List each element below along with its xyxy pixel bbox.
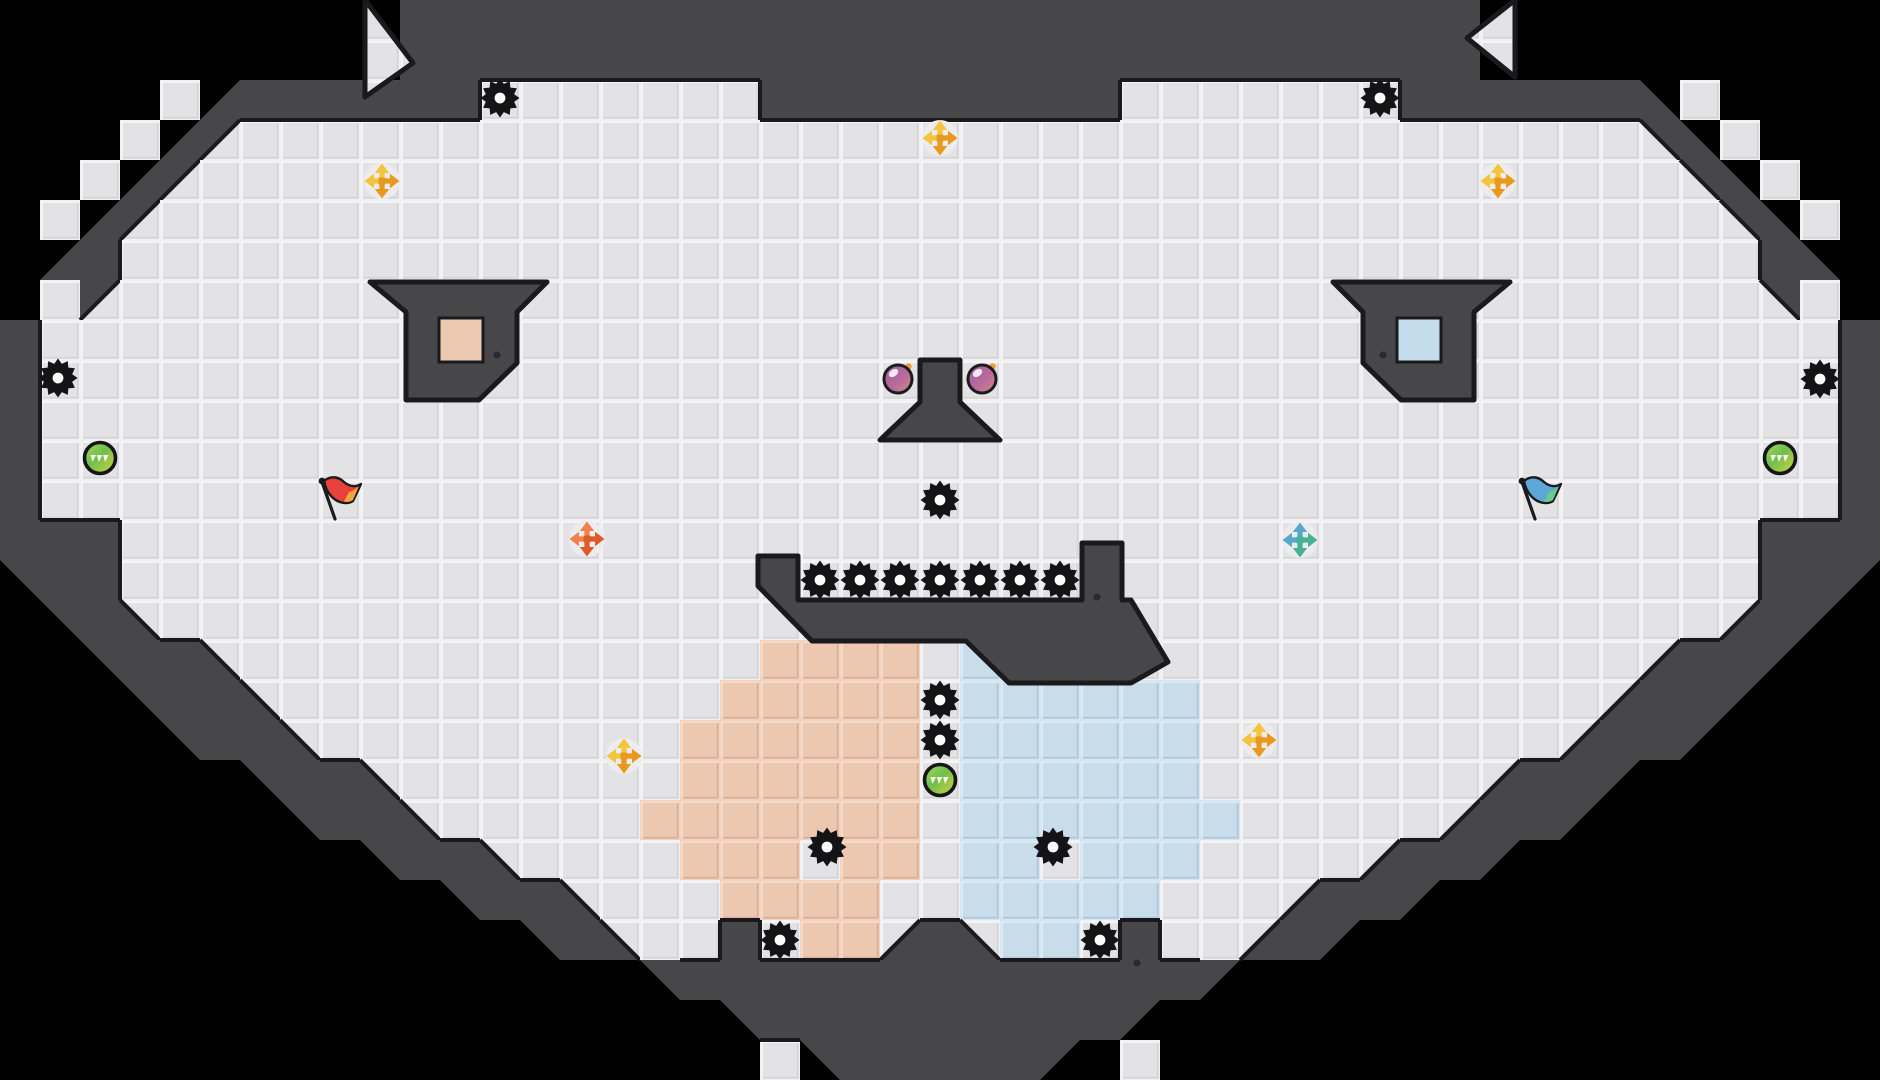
left-eye-square [439,318,483,362]
teal-plus-icon[interactable] [1282,522,1318,558]
purple-orb-icon[interactable] [968,363,996,393]
orange-plus-icon[interactable] [569,521,605,557]
game-level-screen [0,0,1880,1080]
green-orb-icon[interactable] [85,443,116,474]
yellow-plus-icon[interactable] [1480,163,1516,199]
yellow-plus-icon[interactable] [606,738,642,774]
level-canvas[interactable] [0,0,1880,1080]
yellow-plus-icon[interactable] [1241,722,1277,758]
screw-dot [1380,352,1387,359]
yellow-plus-icon[interactable] [364,163,400,199]
screw-dot [1094,594,1101,601]
green-orb-icon[interactable] [1765,443,1796,474]
purple-orb-icon[interactable] [884,363,912,393]
right-eye-square [1397,318,1441,362]
screw-dot [1134,960,1141,967]
green-orb-icon[interactable] [925,765,956,796]
screw-dot [494,352,501,359]
yellow-plus-icon[interactable] [922,120,958,156]
